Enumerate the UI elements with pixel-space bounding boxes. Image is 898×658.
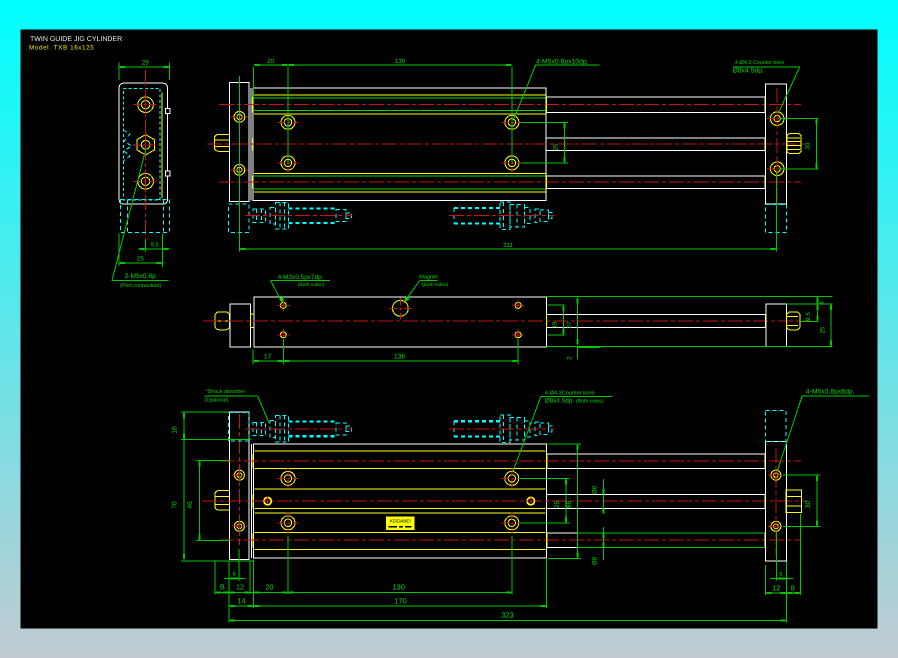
svg-text:29: 29 [142,60,149,67]
svg-text:9.5: 9.5 [805,312,812,321]
svg-text:KOGANEI: KOGANEI [390,518,411,523]
svg-text:(Optional): (Optional) [205,398,229,404]
svg-text:Ø8x4.5dp.: Ø8x4.5dp. [545,398,575,405]
svg-text:12: 12 [236,583,244,592]
svg-text:8: 8 [791,584,795,593]
svg-text:B: B [220,583,225,592]
svg-text:25: 25 [554,501,561,509]
svg-text:130: 130 [395,58,406,65]
svg-text:4-M3x0.5px7dp.: 4-M3x0.5px7dp. [278,274,324,281]
svg-text:25: 25 [820,326,827,333]
svg-text:30: 30 [805,501,812,509]
svg-text:Ø8: Ø8 [592,485,599,494]
svg-text:46: 46 [187,501,194,509]
svg-text:2-M5x0.8p: 2-M5x0.8p [125,273,156,280]
svg-text:4-Ø4.3Counter bore: 4-Ø4.3Counter bore [545,390,595,397]
svg-text:136: 136 [394,353,406,360]
svg-text:(Both sides): (Both sides) [298,282,325,288]
svg-text:(Both sides): (Both sides) [576,398,604,404]
svg-text:20: 20 [267,58,274,65]
svg-text:4-Ø4.3 Counter bore: 4-Ø4.3 Counter bore [735,60,784,66]
svg-text:2: 2 [567,356,574,360]
svg-text:30: 30 [805,142,812,149]
svg-text:4-M5x0.8px10dp.: 4-M5x0.8px10dp. [536,59,589,66]
svg-text:311: 311 [503,242,513,249]
svg-text:4-M5x0.8px8dp.: 4-M5x0.8px8dp. [806,388,855,395]
svg-text:27: 27 [566,321,573,328]
svg-text:66: 66 [566,501,573,509]
svg-text:*Shock absorber: *Shock absorber [206,389,246,395]
svg-text:Model. TXB 16x125: Model. TXB 16x125 [29,44,94,51]
svg-text:(Port connection): (Port connection) [120,283,161,289]
svg-text:25: 25 [553,143,560,150]
svg-text:16: 16 [172,426,179,434]
svg-text:19: 19 [552,321,559,328]
svg-text:130: 130 [393,583,405,592]
svg-text:Ø8: Ø8 [592,556,599,565]
svg-text:TWIN GUIDE JIG CYLINDER: TWIN GUIDE JIG CYLINDER [30,36,122,43]
svg-text:Magnet: Magnet [419,275,438,281]
svg-text:17: 17 [264,353,272,360]
svg-text:Ø8x4.5dp.: Ø8x4.5dp. [733,68,764,75]
svg-text:20: 20 [265,583,273,592]
svg-text:323: 323 [501,611,513,620]
svg-text:14: 14 [237,596,245,605]
svg-text:9.5: 9.5 [151,242,159,249]
svg-text:70: 70 [172,501,179,509]
svg-text:4: 4 [819,301,826,305]
svg-text:12: 12 [772,584,780,593]
svg-text:170: 170 [394,596,406,605]
svg-text:(Both sides): (Both sides) [422,282,449,288]
svg-text:25: 25 [137,255,145,262]
